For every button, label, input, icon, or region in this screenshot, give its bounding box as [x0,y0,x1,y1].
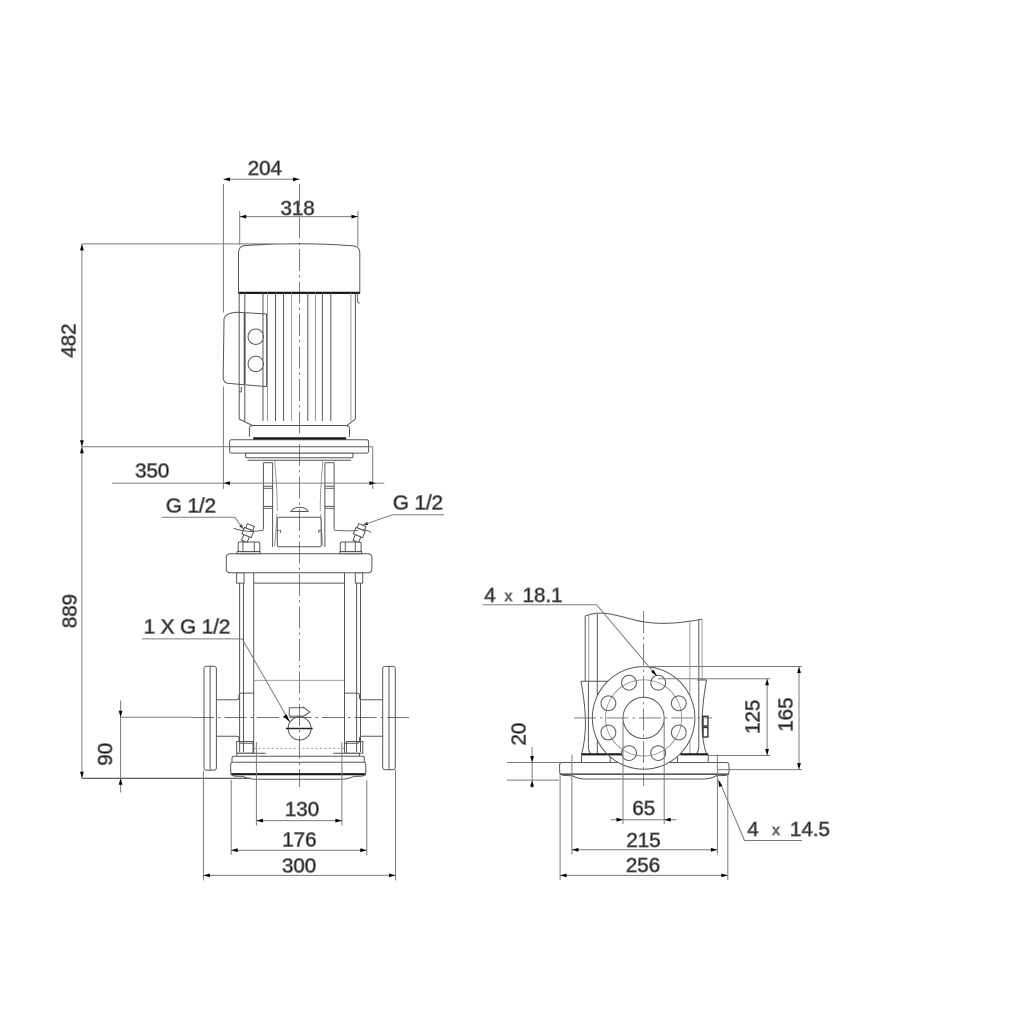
svg-text:x: x [505,588,513,605]
svg-text:90: 90 [94,743,117,766]
svg-text:x: x [772,822,780,839]
svg-text:20: 20 [508,723,531,746]
svg-text:482: 482 [58,323,81,357]
svg-text:350: 350 [135,460,169,483]
svg-text:14.5: 14.5 [790,818,830,841]
svg-text:256: 256 [626,854,660,877]
svg-text:4: 4 [747,818,758,841]
svg-text:300: 300 [282,855,316,878]
svg-text:165: 165 [775,697,798,731]
svg-text:318: 318 [280,197,314,220]
svg-text:1 X G 1/2: 1 X G 1/2 [144,616,231,639]
svg-text:125: 125 [742,700,765,734]
svg-text:G 1/2: G 1/2 [393,492,443,515]
svg-text:204: 204 [248,157,282,180]
svg-text:130: 130 [285,798,319,821]
svg-text:889: 889 [59,594,82,628]
svg-text:215: 215 [626,829,660,852]
svg-text:G 1/2: G 1/2 [166,495,216,518]
svg-text:65: 65 [632,797,655,820]
svg-text:176: 176 [282,829,316,852]
svg-text:18.1: 18.1 [523,584,563,607]
svg-text:4: 4 [484,584,495,607]
